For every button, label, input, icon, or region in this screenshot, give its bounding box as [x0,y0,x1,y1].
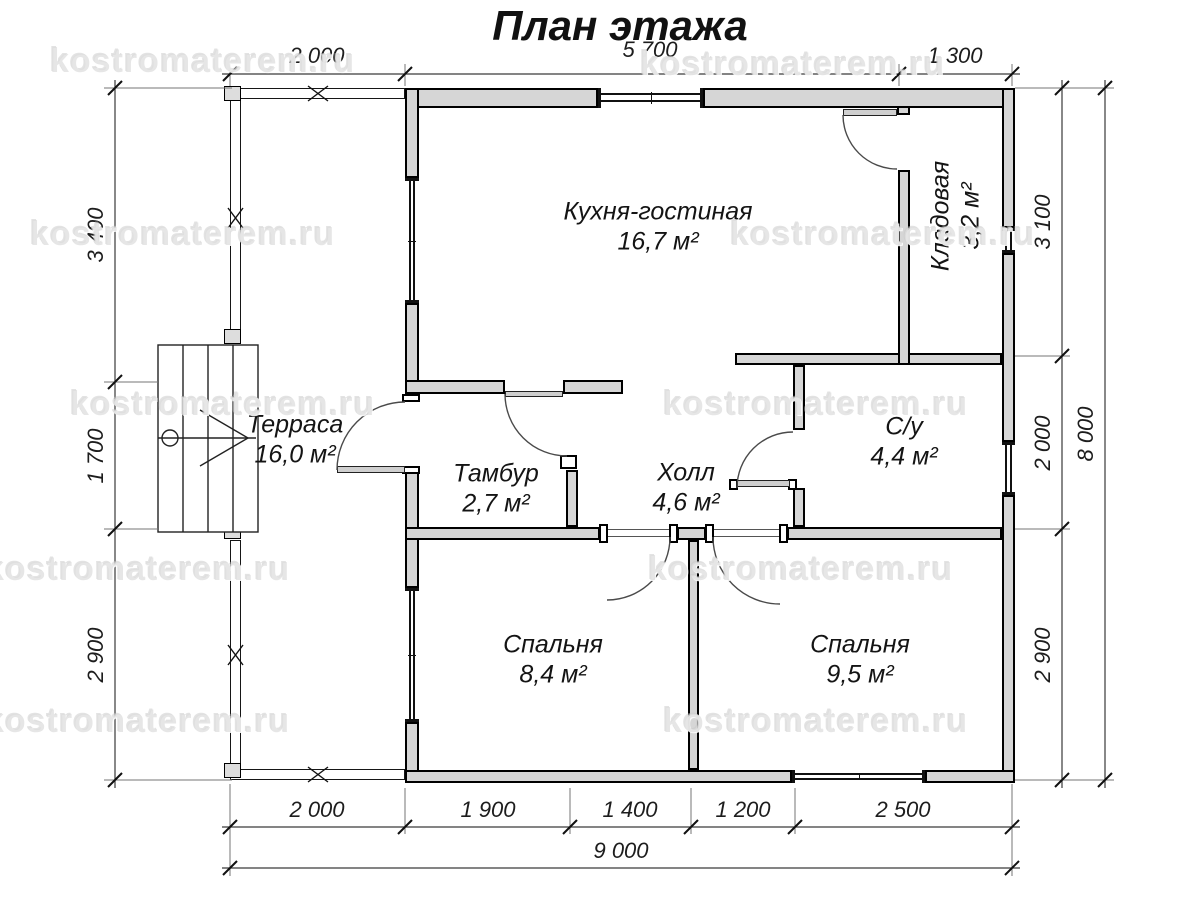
room-area: 2,7 м² [453,489,539,519]
room-name: Терраса [247,411,343,441]
door-arc-kitchen [505,394,567,456]
dim-left-2: 1 700 [83,428,109,483]
room-area: 8,4 м² [503,660,603,690]
room-label-kitchen: Кухня-гостиная 16,7 м² [563,198,752,257]
room-label-terrace: Терраса 16,0 м² [247,411,343,470]
rail-x-mark-top [308,86,328,101]
dim-left-1: 3 400 [83,207,109,262]
dim-right-3: 2 900 [1030,627,1056,682]
door-arc-bedroom2 [713,537,780,604]
room-area: 4,4 м² [870,442,937,472]
room-label-pantry: Кладовая 3,2 м² [927,161,986,271]
room-name: Спальня [503,631,603,661]
rail-x-mark-left1 [228,208,243,228]
dim-top-3: 1 300 [927,43,982,69]
room-label-vestibule: Тамбур 2,7 м² [453,460,539,519]
dim-bottom-5: 2 500 [875,797,930,823]
door-arc-bedroom1 [607,537,670,600]
room-area: 4,6 м² [652,488,719,518]
dim-bottom-3: 1 400 [602,797,657,823]
room-label-hall: Холл 4,6 м² [652,459,719,518]
dim-right-2: 2 000 [1030,415,1056,470]
rail-x-mark-bottom [308,767,328,782]
room-label-bathroom: С/у 4,4 м² [870,413,937,472]
room-area: 9,5 м² [810,660,910,690]
dim-bottom-1: 2 000 [289,797,344,823]
door-arc-bathroom [737,432,793,488]
room-name: С/у [870,413,937,443]
room-label-bedroom1: Спальня 8,4 м² [503,631,603,690]
room-name: Холл [652,459,719,489]
room-label-bedroom2: Спальня 9,5 м² [810,631,910,690]
room-name: Тамбур [453,460,539,490]
dim-right-total: 8 000 [1073,406,1099,461]
dim-bottom-4: 1 200 [715,797,770,823]
door-arc-terrace [337,402,405,470]
room-name: Кухня-гостиная [563,198,752,228]
dim-bottom-total: 9 000 [593,838,648,864]
rail-x-mark-left2 [228,645,243,665]
room-area: 3,2 м² [956,161,986,271]
room-area: 16,0 м² [247,440,343,470]
door-arc-pantry [843,115,897,169]
dim-bottom-2: 1 900 [460,797,515,823]
plan-title: План этажа [492,2,747,50]
room-name: Кладовая [927,161,957,271]
dim-left-3: 2 900 [83,627,109,682]
plan-linework [0,0,1200,900]
entrance-stairs [158,345,258,532]
room-name: Спальня [810,631,910,661]
floor-plan: План этажа [0,0,1200,900]
room-area: 16,7 м² [563,227,752,257]
dim-right-1: 3 100 [1030,194,1056,249]
dim-top-1: 2 000 [289,43,344,69]
